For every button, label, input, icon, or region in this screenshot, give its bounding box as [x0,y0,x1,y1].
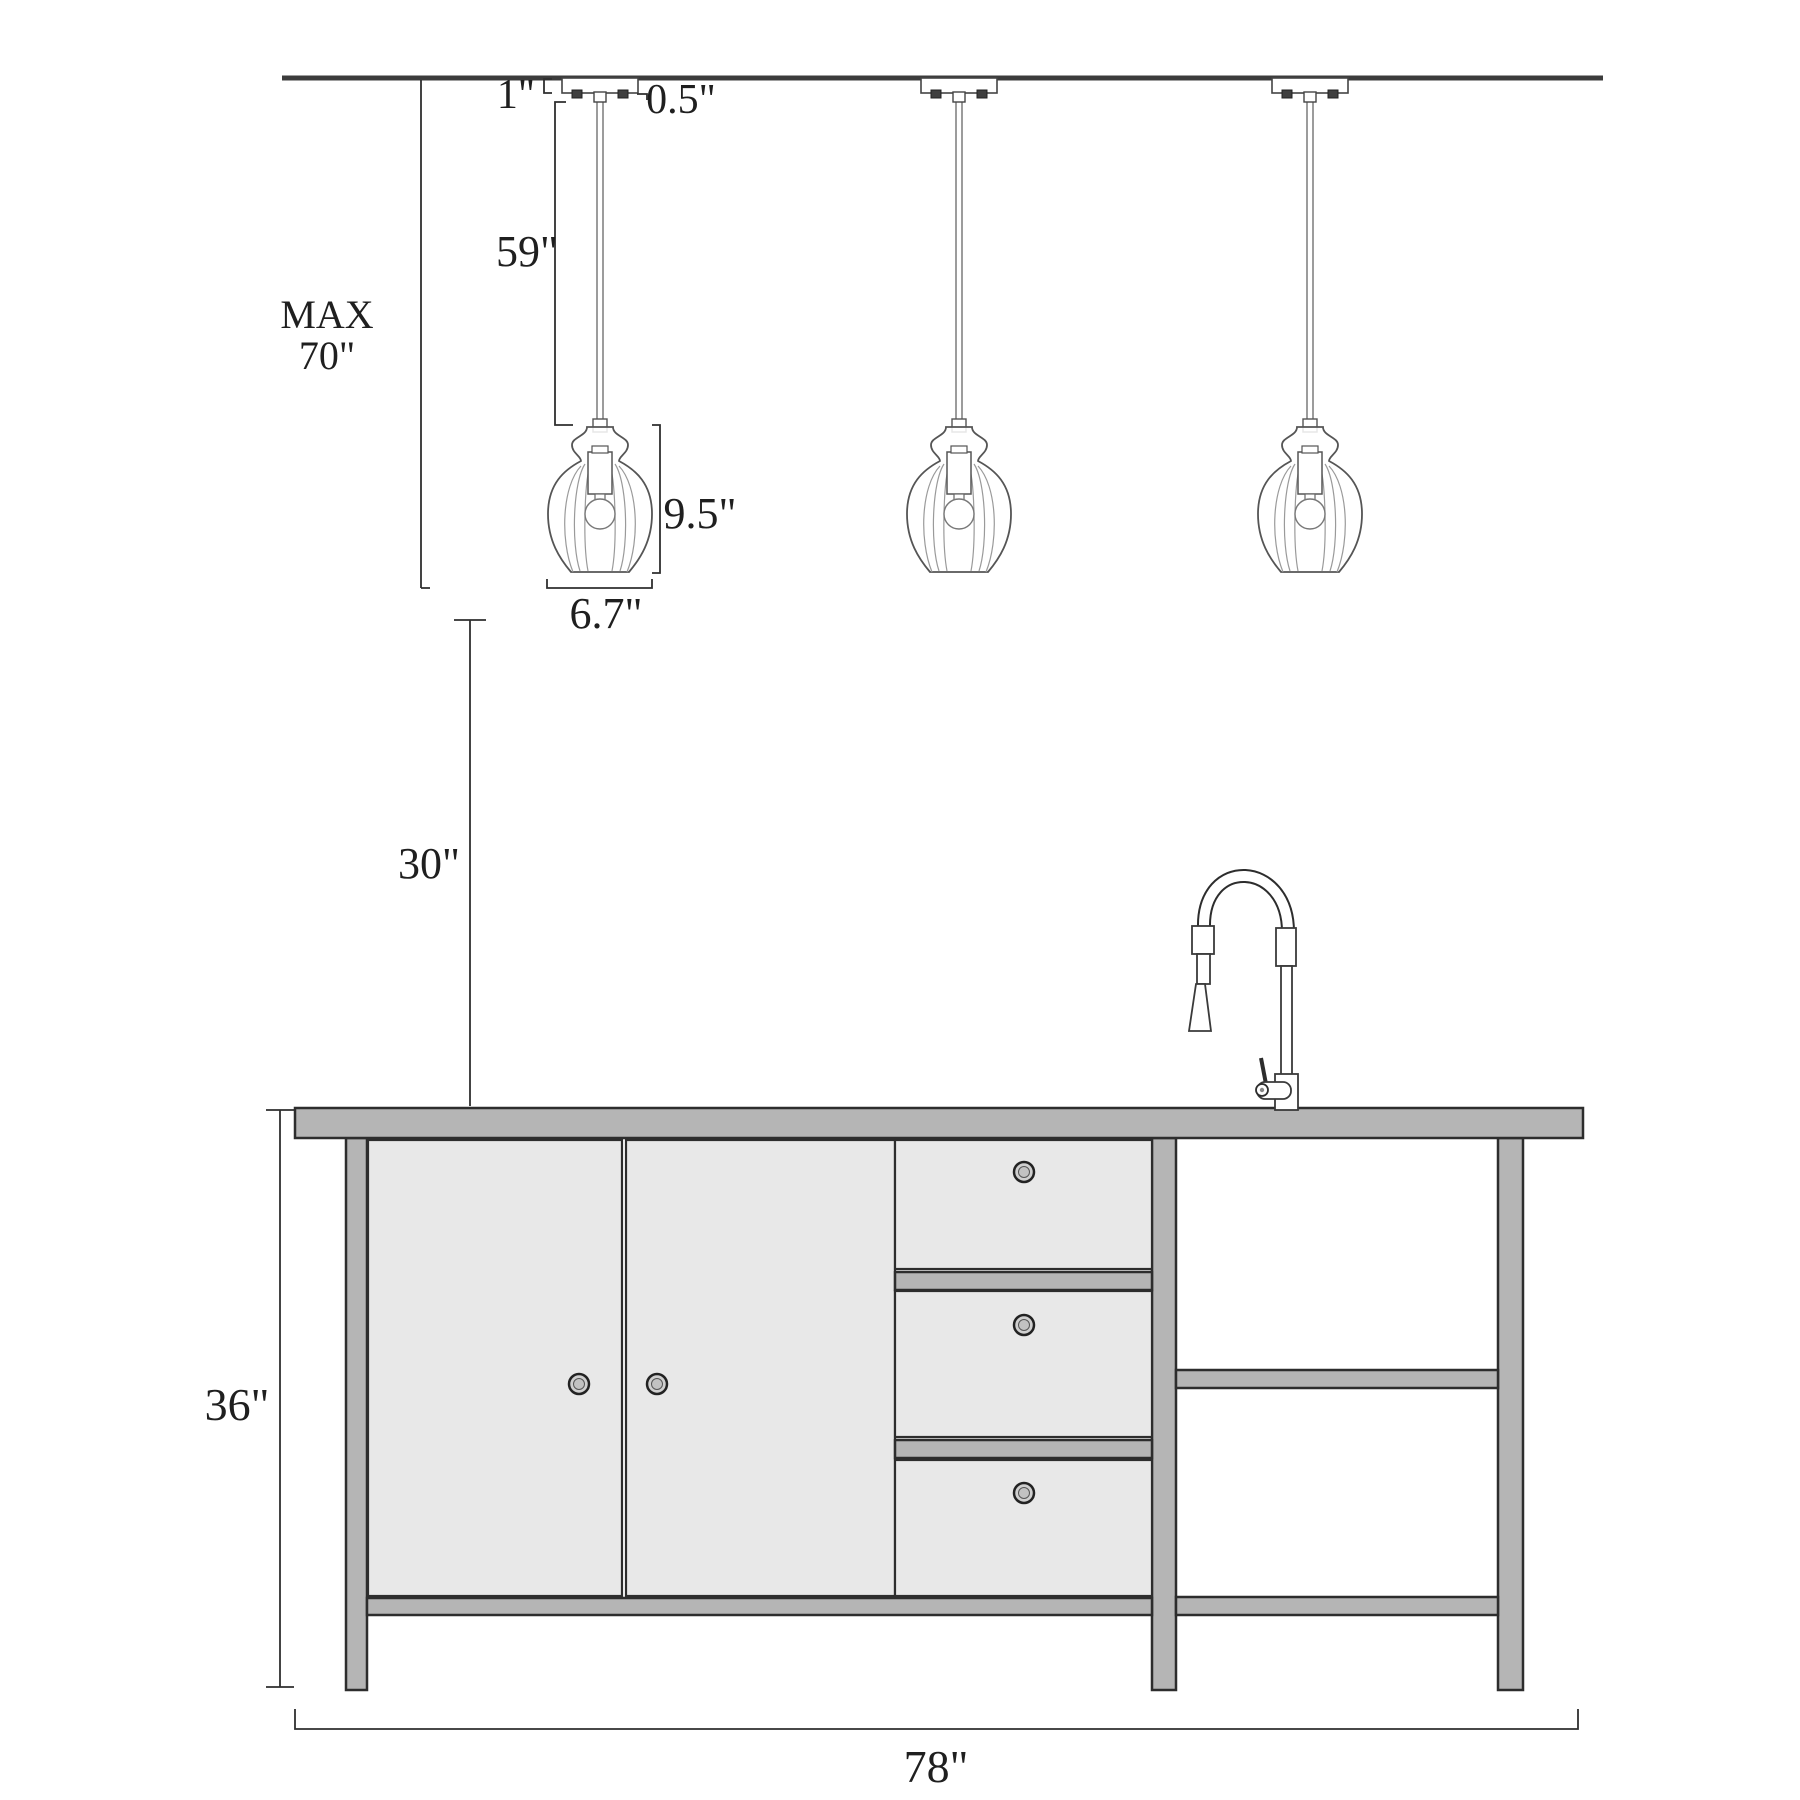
countertop [295,1108,1583,1138]
open-shelf-upper [1176,1370,1498,1388]
door-knob-left [569,1374,589,1394]
shade-diameter-label: 6.7" [570,589,643,638]
shade-height-label: 9.5" [664,489,737,538]
faucet-handle-lever [1261,1058,1266,1084]
drawer-1 [895,1140,1152,1269]
pendant-light-2 [907,78,1011,572]
island-width-label: 78" [904,1741,969,1792]
clearance-label: 30" [398,839,460,888]
faucet-handle-cap-dot [1260,1088,1264,1092]
island-leg-left [346,1138,367,1690]
door-knob-right [647,1374,667,1394]
max-drop-word-label: MAX [280,292,373,337]
sprayer-stem [1197,954,1210,984]
kitchen-island [295,1108,1583,1690]
island-height-label: 36" [205,1379,270,1430]
drawer-3 [895,1460,1152,1596]
island-leg-middle [1152,1138,1176,1690]
island-width-dim-line [295,1709,1578,1729]
cord-length-label: 59" [496,227,558,276]
max-drop-value-label: 70" [299,333,355,378]
stem-height-label: 0.5" [646,77,716,123]
faucet [1189,876,1298,1110]
open-shelf-lower [1176,1597,1498,1615]
shade-height-dim-line [652,425,660,573]
drawer-knob-1 [1014,1162,1034,1182]
drawer-rail-1 [895,1272,1152,1290]
cabinet-door-right [626,1140,895,1596]
sprayer-head [1192,926,1214,954]
faucet-collar [1276,928,1296,966]
diagram-canvas: 1" 0.5" 59" MAX 70" 9.5" 6.7" 30" 36" 78… [0,0,1800,1800]
pendant-light-3 [1258,78,1362,572]
drawer-2 [895,1291,1152,1437]
shade-width-dim-line [547,579,652,588]
drawer-knob-2 [1014,1315,1034,1335]
canopy-height-label: 1" [497,72,535,118]
cabinet-door-left [368,1140,622,1596]
sprayer-cone [1189,984,1211,1031]
island-leg-right [1498,1138,1523,1690]
pendant-light-1 [548,78,652,572]
island-height-dim-line [266,1110,294,1687]
max-drop-dim-line [421,80,430,588]
faucet-riser [1281,966,1292,1076]
drawer-knob-3 [1014,1483,1034,1503]
canopy-dim-bracket [544,79,552,93]
cabinet-bottom-rail [367,1598,1152,1615]
drawer-rail-2 [895,1440,1152,1458]
dimension-diagram: 1" 0.5" 59" MAX 70" 9.5" 6.7" 30" 36" 78… [0,0,1800,1800]
